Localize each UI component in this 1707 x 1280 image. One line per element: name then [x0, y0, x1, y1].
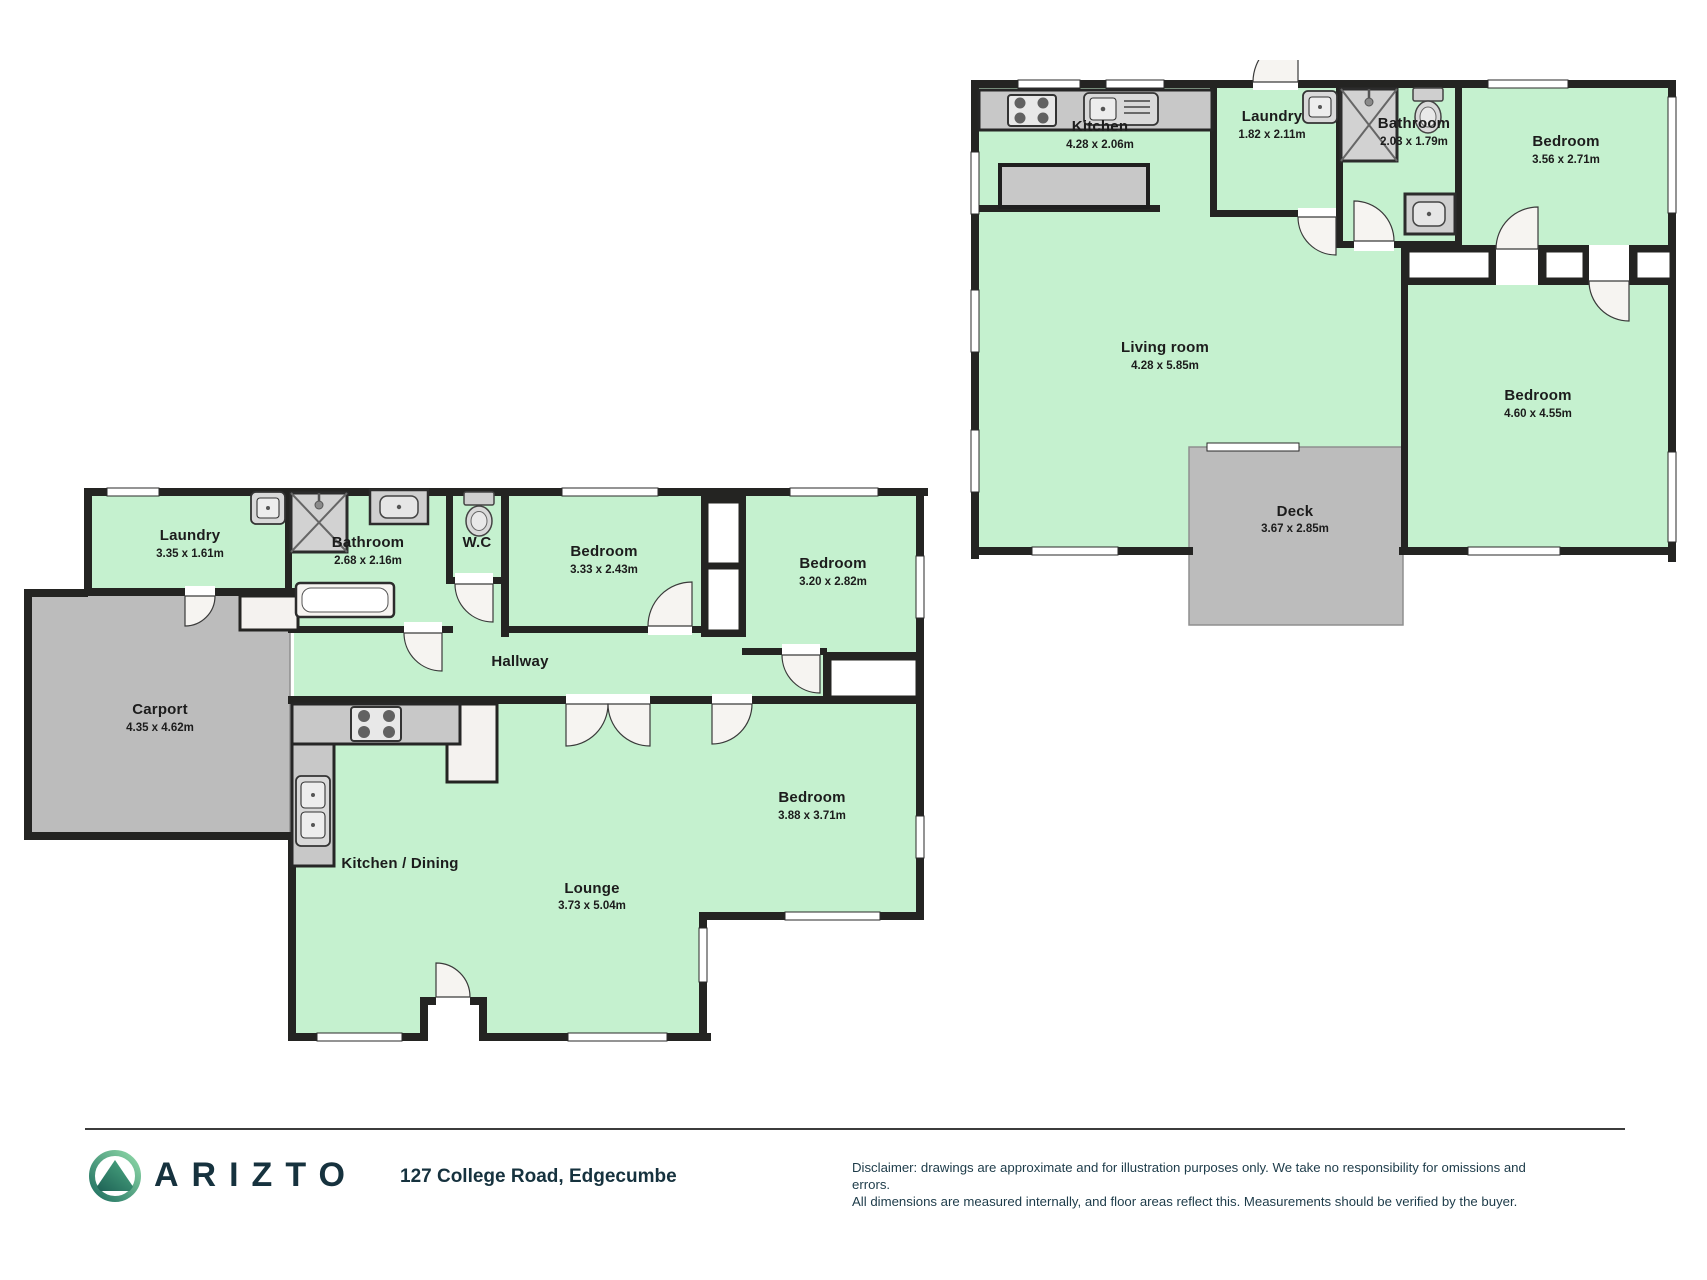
room-label-hallway: Hallway [491, 653, 549, 670]
brand-wordmark: ARIZTO [154, 1156, 358, 1195]
disclaimer-line-1: Disclaimer: drawings are approximate and… [852, 1159, 1552, 1193]
wardrobe [831, 660, 916, 696]
disclaimer-line-2: All dimensions are measured internally, … [852, 1193, 1552, 1210]
floorplan-main-dwelling: Laundry 3.35 x 1.61m Bathroom 2.68 x 2.1… [20, 450, 950, 1060]
room-dims-bedroom5: 3.88 x 3.71m [778, 810, 846, 822]
room-dims-deck: 3.67 x 2.85m [1261, 523, 1329, 535]
laundry-tub-icon [251, 492, 285, 524]
double-sink-icon [296, 776, 330, 846]
stove-icon [351, 707, 401, 741]
room-dims-laundry-upper: 1.82 x 2.11m [1238, 129, 1305, 141]
room-label-lounge: Lounge [564, 880, 619, 897]
room-label-bedroom5: Bedroom [778, 789, 845, 806]
wardrobe [708, 503, 739, 563]
room-label-bedroom3: Bedroom [570, 543, 637, 560]
room-label-bedroom2-upper: Bedroom [1504, 387, 1571, 404]
laundry-tub-icon [1303, 91, 1337, 123]
room-dims-living-upper: 4.28 x 5.85m [1131, 360, 1199, 372]
room-dims-bedroom4: 3.20 x 2.82m [799, 576, 867, 588]
stove-icon [1008, 95, 1056, 126]
footer-divider [85, 1128, 1625, 1130]
deck-area [1189, 447, 1403, 625]
room-dims-laundry-lower: 3.35 x 1.61m [156, 548, 224, 560]
bathtub-icon [296, 583, 394, 617]
room-label-deck: Deck [1277, 503, 1314, 520]
vanity-sink-icon [370, 490, 428, 524]
floorplan-upper-dwelling: Kitchen 4.28 x 2.06m Laundry 1.82 x 2.11… [950, 60, 1690, 650]
arizto-logo [88, 1149, 142, 1203]
disclaimer-text: Disclaimer: drawings are approximate and… [852, 1159, 1552, 1210]
room-dims-bedroom3: 3.33 x 2.43m [570, 564, 638, 576]
property-address: 127 College Road, Edgecumbe [400, 1166, 677, 1188]
kitchen-island [1000, 165, 1148, 207]
room-label-bedroom1-upper: Bedroom [1532, 133, 1599, 150]
room-label-bathroom-upper: Bathroom [1378, 115, 1450, 132]
wardrobe [1546, 252, 1583, 278]
room-label-kitchen-dining: Kitchen / Dining [341, 855, 458, 872]
room-dims-bedroom1-upper: 3.56 x 2.71m [1532, 154, 1600, 166]
room-dims-bathroom-lower: 2.68 x 2.16m [334, 555, 402, 567]
linen-closet [240, 596, 298, 630]
floorplan-page: Kitchen 4.28 x 2.06m Laundry 1.82 x 2.11… [0, 0, 1707, 1280]
vanity-sink-icon [1405, 194, 1455, 234]
room-label-laundry-lower: Laundry [160, 527, 221, 544]
room-label-bedroom4: Bedroom [799, 555, 866, 572]
room-label-kitchen-upper: Kitchen [1072, 118, 1128, 135]
wardrobe [1409, 252, 1489, 278]
door-arc [1253, 60, 1298, 82]
room-label-bathroom-lower: Bathroom [332, 534, 404, 551]
room-dims-bathroom-upper: 2.03 x 1.79m [1380, 136, 1448, 148]
room-dims-lounge: 3.73 x 5.04m [558, 900, 626, 912]
deck-slider-window [1207, 443, 1299, 451]
toilet-icon [464, 492, 494, 536]
wardrobe [708, 569, 739, 630]
room-dims-kitchen-upper: 4.28 x 2.06m [1066, 139, 1134, 151]
room-label-living-upper: Living room [1121, 339, 1209, 356]
room-dims-carport: 4.35 x 4.62m [126, 722, 194, 734]
room-label-wc: W.C [463, 534, 492, 551]
room-label-laundry-upper: Laundry [1242, 108, 1303, 125]
room-label-carport: Carport [132, 701, 188, 718]
room-dims-bedroom2-upper: 4.60 x 4.55m [1504, 408, 1572, 420]
wardrobe [1637, 252, 1670, 278]
